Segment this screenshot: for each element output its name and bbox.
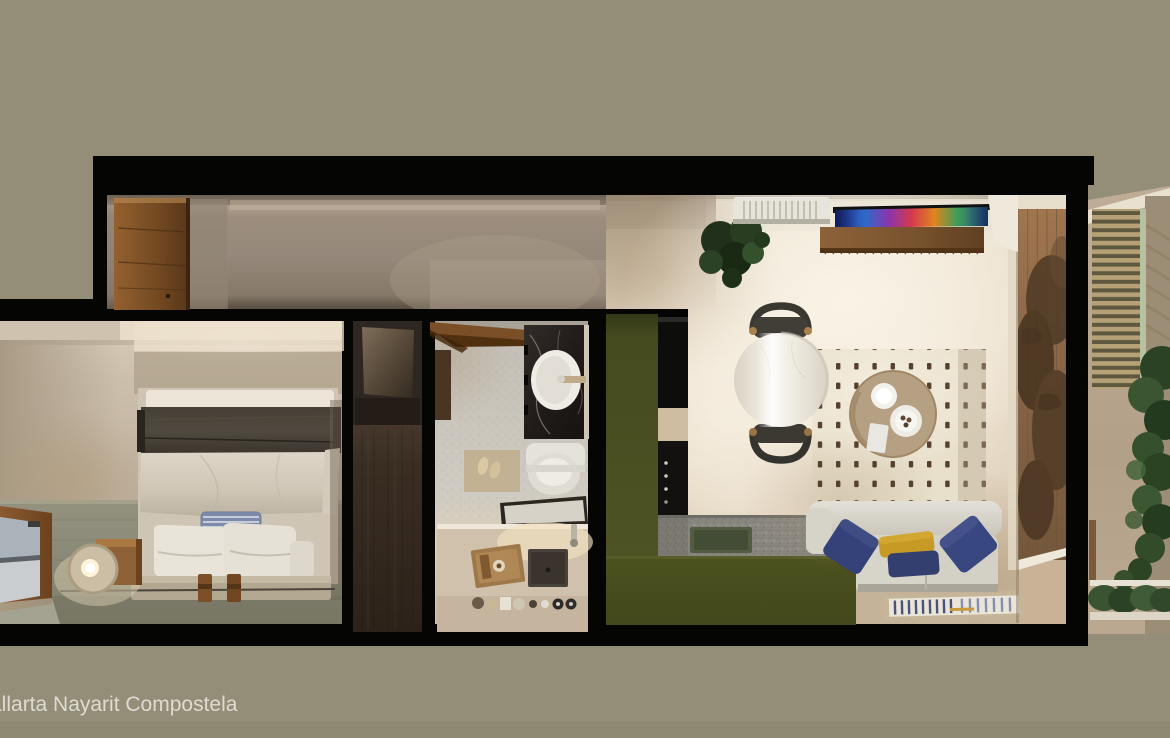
- svg-text:allarta Nayarit Compostela: allarta Nayarit Compostela: [0, 693, 238, 716]
